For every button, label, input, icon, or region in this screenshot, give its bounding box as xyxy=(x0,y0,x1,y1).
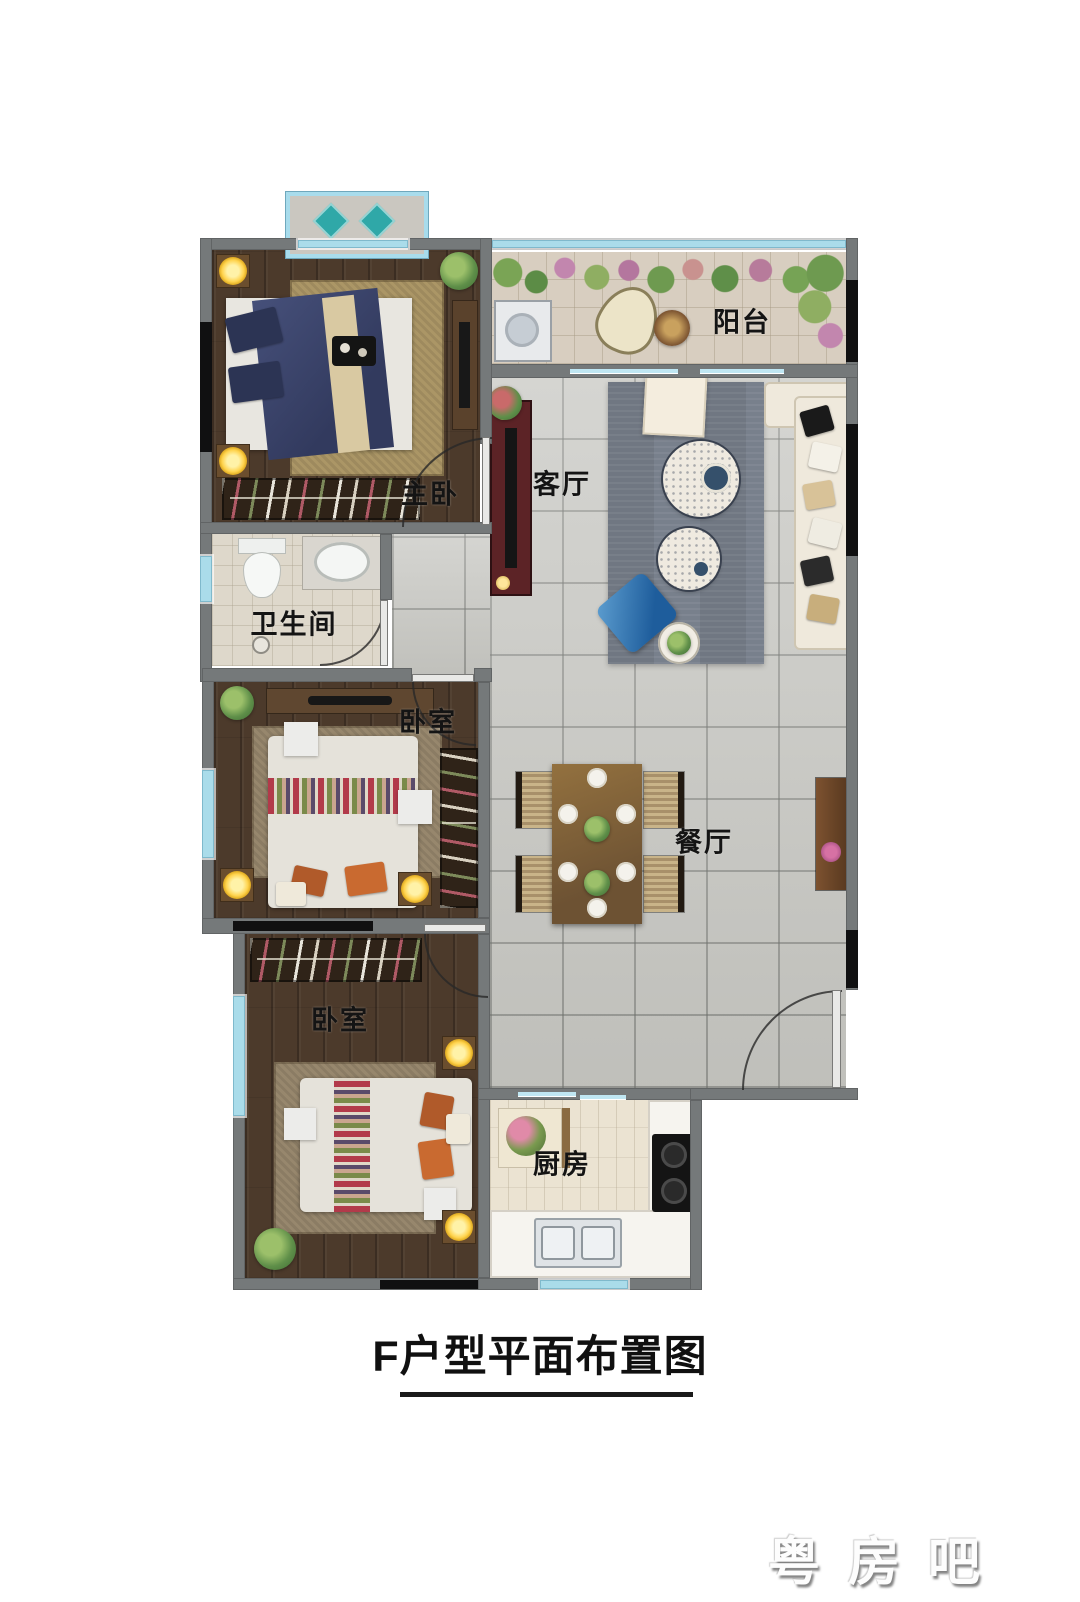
sofa-pillow xyxy=(800,555,835,587)
living-room-label: 客厅 xyxy=(533,463,591,502)
bedroom-middle-bed xyxy=(268,736,418,908)
bathroom-door-leaf xyxy=(380,600,388,666)
dining-room-label: 餐厅 xyxy=(675,821,733,860)
bedroom-middle-window xyxy=(202,770,214,858)
wall xyxy=(480,238,492,444)
coffee-table-dish xyxy=(694,562,708,576)
wall xyxy=(380,534,392,600)
bathroom-vanity xyxy=(302,536,382,590)
tray-cup xyxy=(340,343,350,353)
bay-window-glass xyxy=(298,240,408,248)
bay-window-pillow xyxy=(359,203,396,240)
balcony-sliding-door xyxy=(700,369,784,373)
bedroom-bottom-lamp xyxy=(442,1210,476,1244)
kitchen-window xyxy=(540,1280,628,1289)
bay-window-pillow xyxy=(313,203,350,240)
bay-window xyxy=(286,192,428,258)
bedroom-bottom-window xyxy=(233,996,245,1116)
place-setting xyxy=(558,862,578,882)
balcony-label: 阳台 xyxy=(713,301,771,340)
master-tv-cabinet xyxy=(452,300,478,430)
kitchen-sink xyxy=(534,1218,622,1268)
bedroom-middle-label: 卧室 xyxy=(399,701,457,740)
bathroom-label: 卫生间 xyxy=(251,603,338,642)
bedroom-middle-pillow xyxy=(344,861,388,896)
bedroom-middle-lamp xyxy=(220,868,254,902)
floor-plan-canvas: 阳台 客厅 主卧 卫生间 卧室 餐厅 卧室 厨房 F户型平面布置图 粤房吧 xyxy=(0,0,1080,1602)
balcony-sliding-door xyxy=(570,369,678,373)
bedroom-middle-door-leaf xyxy=(412,674,474,682)
bedside-cube xyxy=(284,1108,316,1140)
master-bed xyxy=(226,298,412,450)
stove-burner xyxy=(661,1142,687,1168)
master-nightstand-lamp xyxy=(216,254,250,288)
kitchen-sliding-door xyxy=(580,1095,626,1099)
living-flower-pot xyxy=(488,386,522,420)
bedside-cube xyxy=(398,790,432,824)
sofa-pillow xyxy=(807,517,842,549)
bedroom-bottom-label: 卧室 xyxy=(311,999,369,1038)
wall xyxy=(200,238,298,250)
sofa-pillow xyxy=(802,480,836,511)
master-bedroom-label: 主卧 xyxy=(401,473,459,512)
master-wardrobe xyxy=(222,478,420,520)
plan-title: F户型平面布置图 xyxy=(0,1322,1080,1384)
washing-machine xyxy=(494,300,552,362)
sofa-pillow xyxy=(806,594,840,625)
dining-side-cabinet xyxy=(816,778,846,890)
sink-basin xyxy=(581,1226,615,1260)
bedroom-bottom-wardrobe xyxy=(250,938,422,982)
window-dark-segment xyxy=(200,322,212,452)
window-dark-segment xyxy=(846,280,858,362)
coffee-table-small xyxy=(658,528,720,590)
window-dark-segment xyxy=(233,921,373,931)
bedroom-bottom-plant xyxy=(254,1228,296,1270)
coffee-table-bowl xyxy=(701,463,731,493)
dining-centerpiece xyxy=(584,870,610,896)
wall xyxy=(202,668,412,682)
bedroom-bottom-bed-stripe xyxy=(334,1078,370,1212)
bedroom-middle-lamp xyxy=(398,872,432,906)
cabinet-flowers xyxy=(821,842,841,862)
place-setting xyxy=(616,862,636,882)
sofa-pillow xyxy=(799,404,835,437)
plant-stand-plant xyxy=(667,631,691,655)
window-dark-segment xyxy=(846,424,858,556)
breakfast-tray xyxy=(332,336,376,366)
bedroom-middle-wardrobe xyxy=(440,748,478,908)
master-tv xyxy=(459,322,470,408)
bedroom-middle-pillow xyxy=(276,882,306,906)
tray-cup xyxy=(358,348,367,357)
stove-burner xyxy=(661,1178,687,1204)
living-tv-cabinet xyxy=(490,400,532,596)
master-bed-pillow xyxy=(228,361,285,404)
bedroom-middle-bed-stripe xyxy=(268,778,418,814)
balcony-side-table xyxy=(654,310,690,346)
plant-stand xyxy=(658,622,700,664)
wall xyxy=(200,238,212,682)
place-setting xyxy=(587,898,607,918)
washing-machine-door xyxy=(505,313,539,347)
sofa xyxy=(794,396,854,650)
hallway-floor xyxy=(392,534,490,682)
kitchen-label: 厨房 xyxy=(533,1143,591,1182)
master-plant xyxy=(440,252,478,290)
master-door-leaf xyxy=(482,437,490,525)
place-setting xyxy=(616,804,636,824)
entry-door-leaf xyxy=(832,990,841,1088)
sink-basin xyxy=(541,1226,575,1260)
dining-chair xyxy=(644,856,684,912)
coffee-table-large xyxy=(663,441,739,517)
balcony-corner-plants xyxy=(794,254,846,350)
ottoman xyxy=(642,370,707,437)
place-setting xyxy=(558,804,578,824)
bedroom-middle-tv xyxy=(308,696,392,705)
window-dark-segment xyxy=(846,930,858,988)
dining-table xyxy=(552,764,642,924)
balcony-flower-border xyxy=(490,252,846,298)
dining-centerpiece xyxy=(584,816,610,842)
dining-chair xyxy=(516,772,556,828)
bathroom-window xyxy=(200,556,212,602)
bedroom-bottom-pillow xyxy=(418,1138,455,1180)
bedroom-bottom-lamp xyxy=(442,1036,476,1070)
candle xyxy=(496,576,510,590)
bedroom-middle-plant xyxy=(220,686,254,720)
dining-chair xyxy=(516,856,556,912)
wall xyxy=(478,682,490,918)
bedroom-bottom-pillow xyxy=(446,1114,470,1144)
bathroom-sink xyxy=(314,542,370,582)
bedside-cube xyxy=(284,722,318,756)
kitchen-sliding-door xyxy=(518,1092,576,1096)
wall xyxy=(690,1100,702,1290)
bedroom-bottom-door-leaf xyxy=(424,924,486,932)
master-nightstand-lamp xyxy=(216,444,250,478)
living-tv xyxy=(505,428,517,568)
sofa-pillow xyxy=(808,441,843,473)
place-setting xyxy=(587,768,607,788)
watermark: 粤房吧 xyxy=(768,1520,1008,1595)
title-underline xyxy=(400,1392,693,1397)
balcony-window xyxy=(492,240,846,248)
wall xyxy=(474,668,492,682)
window-dark-segment xyxy=(380,1280,480,1289)
